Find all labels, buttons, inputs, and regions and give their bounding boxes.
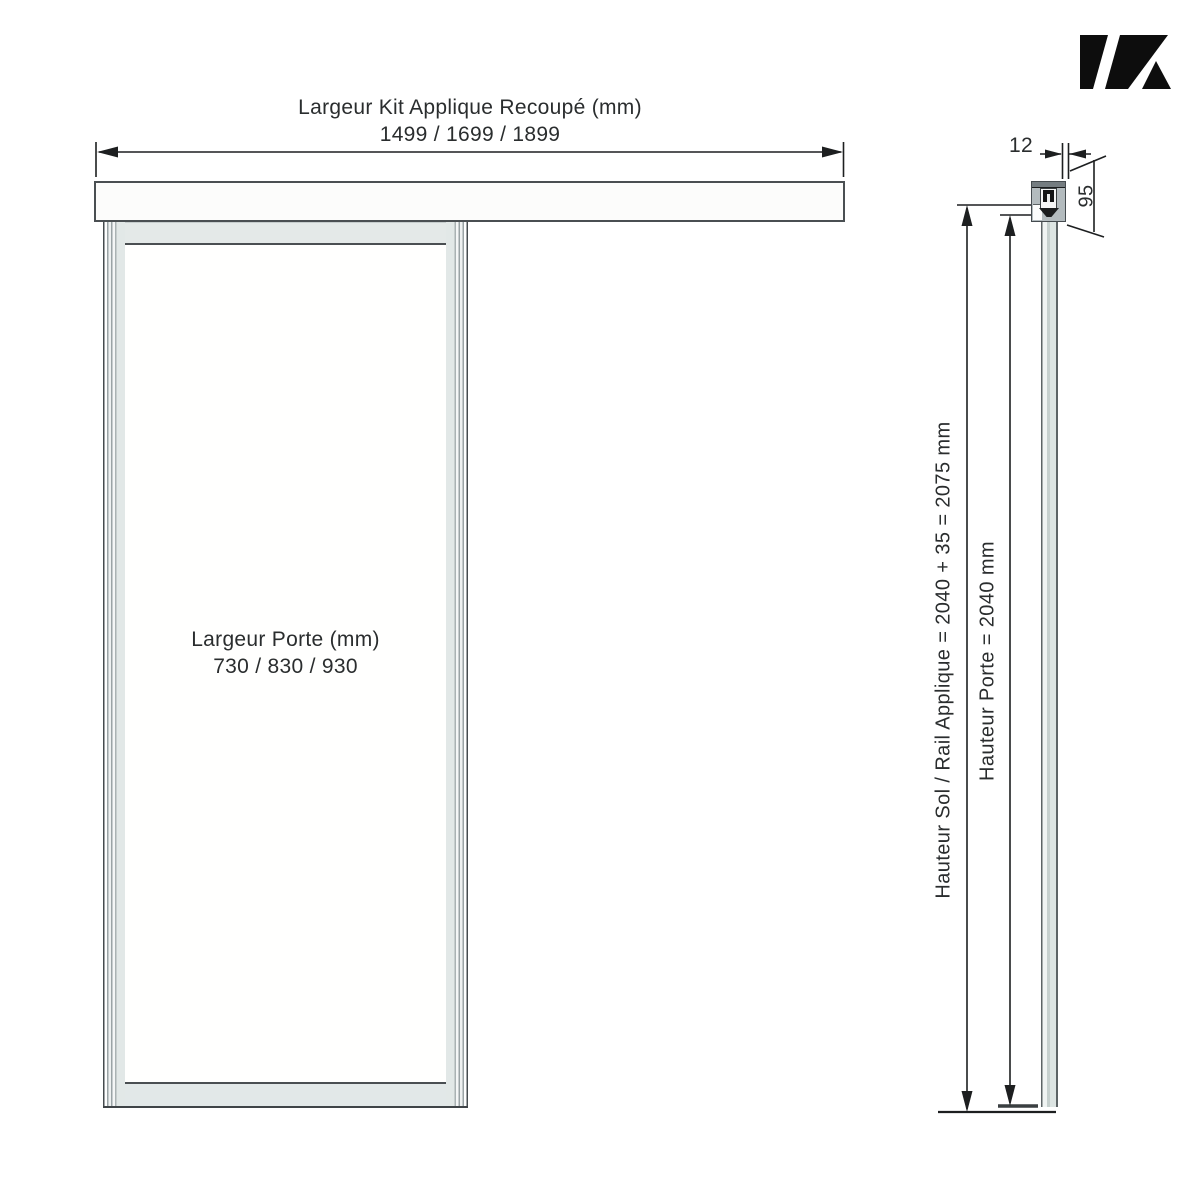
door-clamp <box>1039 208 1059 217</box>
technical-drawing-canvas: Largeur Kit Applique Recoupé (mm) 1499 /… <box>0 0 1200 1200</box>
kit-width-label: Largeur Kit Applique Recoupé (mm) <box>95 94 845 121</box>
rail-track-profile <box>1031 181 1066 222</box>
roller-carriage <box>1040 188 1057 209</box>
rail-profile-height-label: 95 <box>1076 184 1099 207</box>
door-bottom-rail-band <box>125 1082 446 1106</box>
door-bottom-edge <box>103 1106 468 1109</box>
door-width-label: Largeur Porte (mm) <box>103 626 468 653</box>
door-panel-side-profile <box>1041 221 1058 1107</box>
roller-slot <box>1047 194 1050 202</box>
kit-width-values: 1499 / 1699 / 1899 <box>95 121 845 148</box>
applique-rail-front <box>94 181 845 222</box>
total-height-label: Hauteur Sol / Rail Applique = 2040 + 35 … <box>933 421 956 898</box>
door-width-values: 730 / 830 / 930 <box>103 653 468 680</box>
door-top-rail-band <box>125 222 446 245</box>
brand-logo-icon <box>1079 33 1172 90</box>
door-height-label: Hauteur Porte = 2040 mm <box>977 541 1000 781</box>
door-thickness-label: 12 <box>1000 132 1042 159</box>
